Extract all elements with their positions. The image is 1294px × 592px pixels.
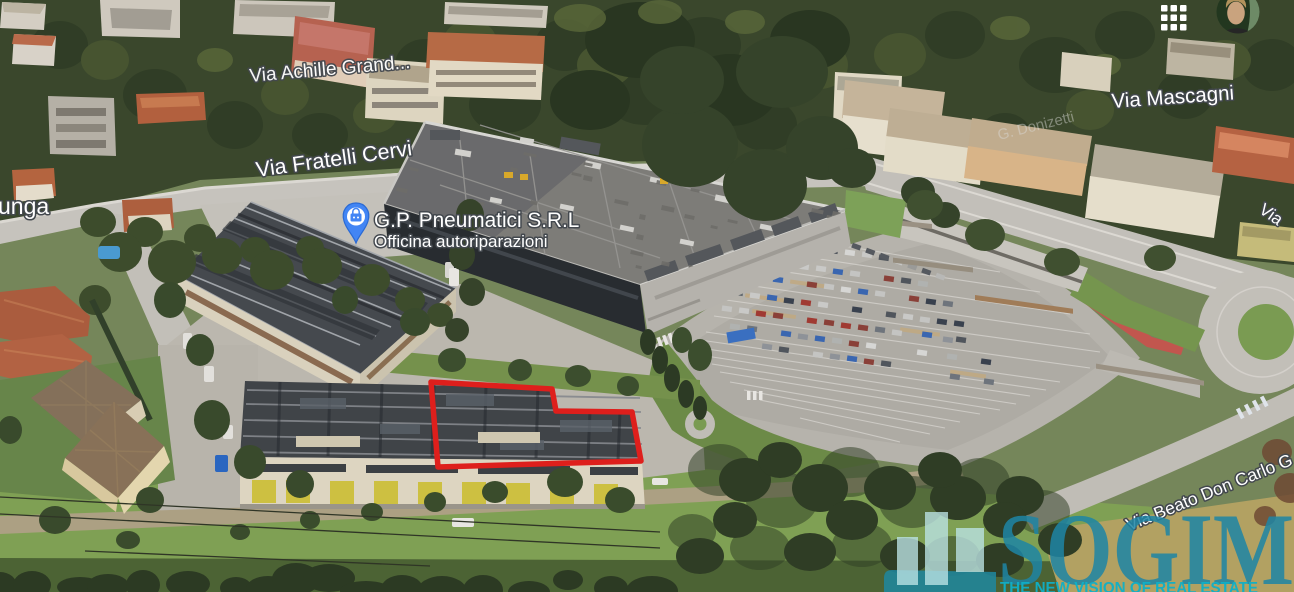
svg-text:unga: unga [0, 193, 49, 219]
svg-text:SOGIM: SOGIM [998, 493, 1294, 592]
svg-text:THE NEW VISION OF REAL ESTATE: THE NEW VISION OF REAL ESTATE [1000, 580, 1258, 592]
svg-text:Officina autoriparazioni: Officina autoriparazioni [374, 232, 548, 251]
svg-text:G.P. Pneumatici S.R.L: G.P. Pneumatici S.R.L [374, 209, 579, 232]
